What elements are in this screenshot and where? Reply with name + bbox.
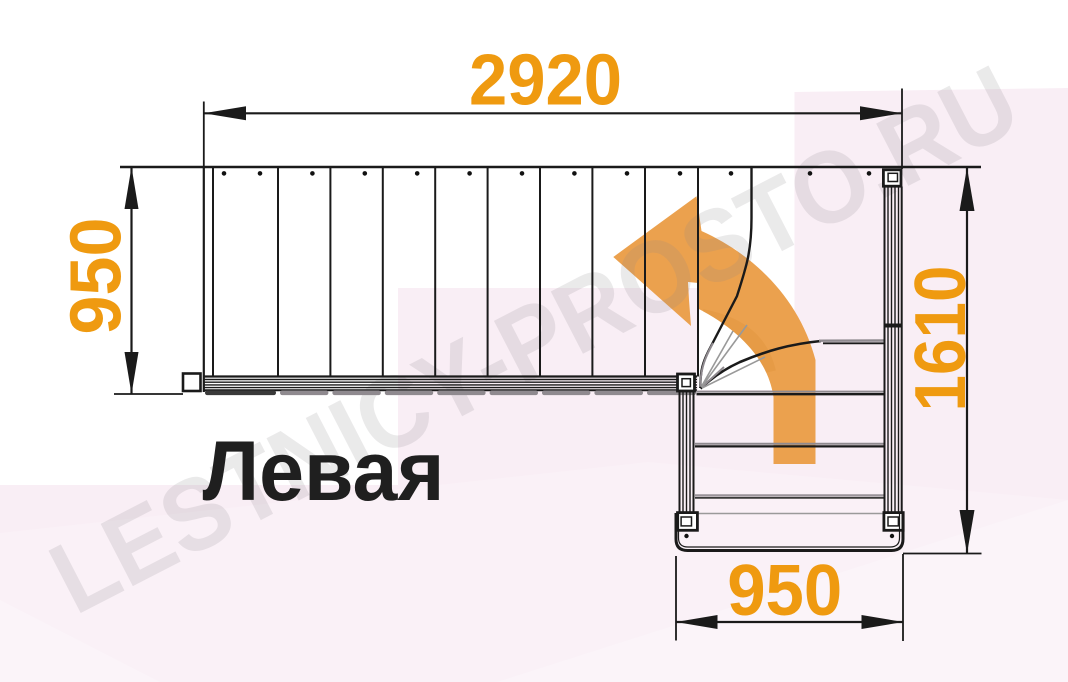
svg-text:1610: 1610 — [900, 266, 981, 412]
svg-text:2920: 2920 — [469, 40, 622, 121]
svg-text:950: 950 — [56, 218, 137, 335]
svg-text:950: 950 — [727, 550, 842, 631]
svg-text:Левая: Левая — [203, 424, 445, 518]
